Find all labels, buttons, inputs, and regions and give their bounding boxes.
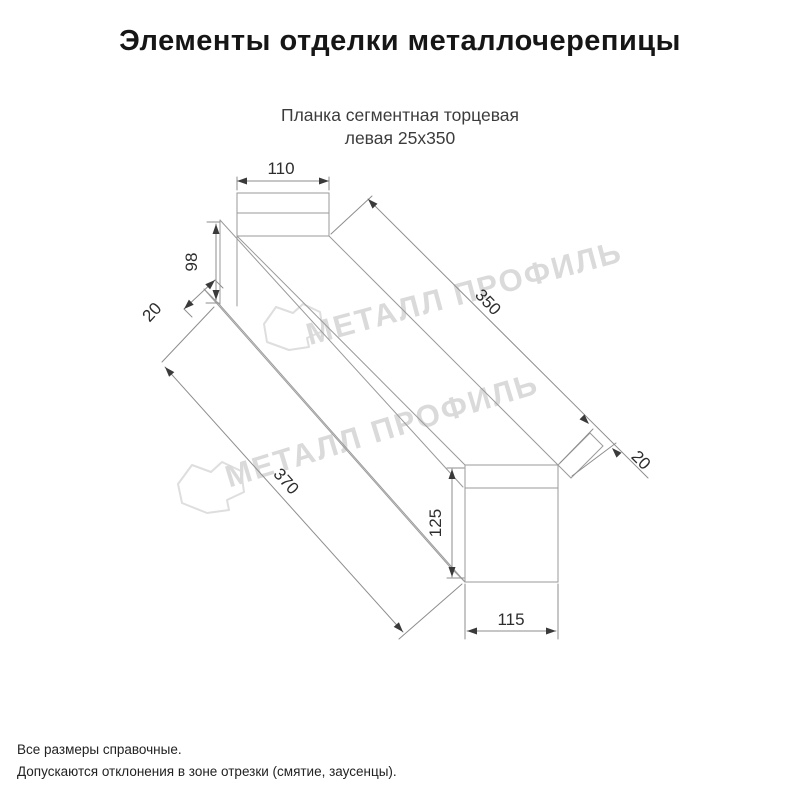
footer-note-line-1: Все размеры справочные.: [17, 739, 397, 761]
watermark-text: МЕТАЛЛ ПРОФИЛЬ: [302, 234, 626, 352]
dim-end-face-height: 125: [426, 509, 445, 537]
dim-web-height: 98: [182, 253, 201, 272]
dim-far-hem-width: 20: [627, 447, 654, 474]
technical-drawing: МЕТАЛЛ ПРОФИЛЬ МЕТАЛЛ ПРОФИЛЬ: [0, 0, 800, 805]
dim-end-face-width: 115: [497, 610, 524, 629]
arrowheads: [165, 178, 622, 635]
dim-top-flange-width: 110: [267, 159, 294, 178]
footer-notes: Все размеры справочные. Допускаются откл…: [17, 739, 397, 782]
watermark-top: МЕТАЛЛ ПРОФИЛЬ: [264, 234, 626, 352]
profile-outline: [204, 193, 603, 582]
dim-near-hem-width: 20: [139, 299, 166, 326]
watermark-bottom: МЕТАЛЛ ПРОФИЛЬ: [178, 366, 543, 513]
drawing-canvas: МЕТАЛЛ ПРОФИЛЬ МЕТАЛЛ ПРОФИЛЬ: [0, 0, 800, 800]
watermark-text: МЕТАЛЛ ПРОФИЛЬ: [221, 366, 543, 495]
footer-note-line-2: Допускаются отклонения в зоне отрезки (с…: [17, 761, 397, 783]
